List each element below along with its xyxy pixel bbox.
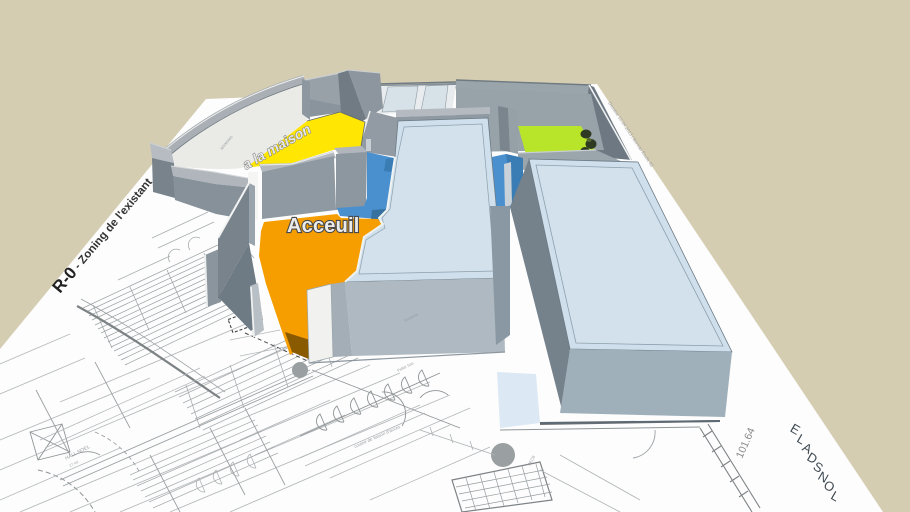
svg-text:Acceuil: Acceuil xyxy=(287,215,360,237)
